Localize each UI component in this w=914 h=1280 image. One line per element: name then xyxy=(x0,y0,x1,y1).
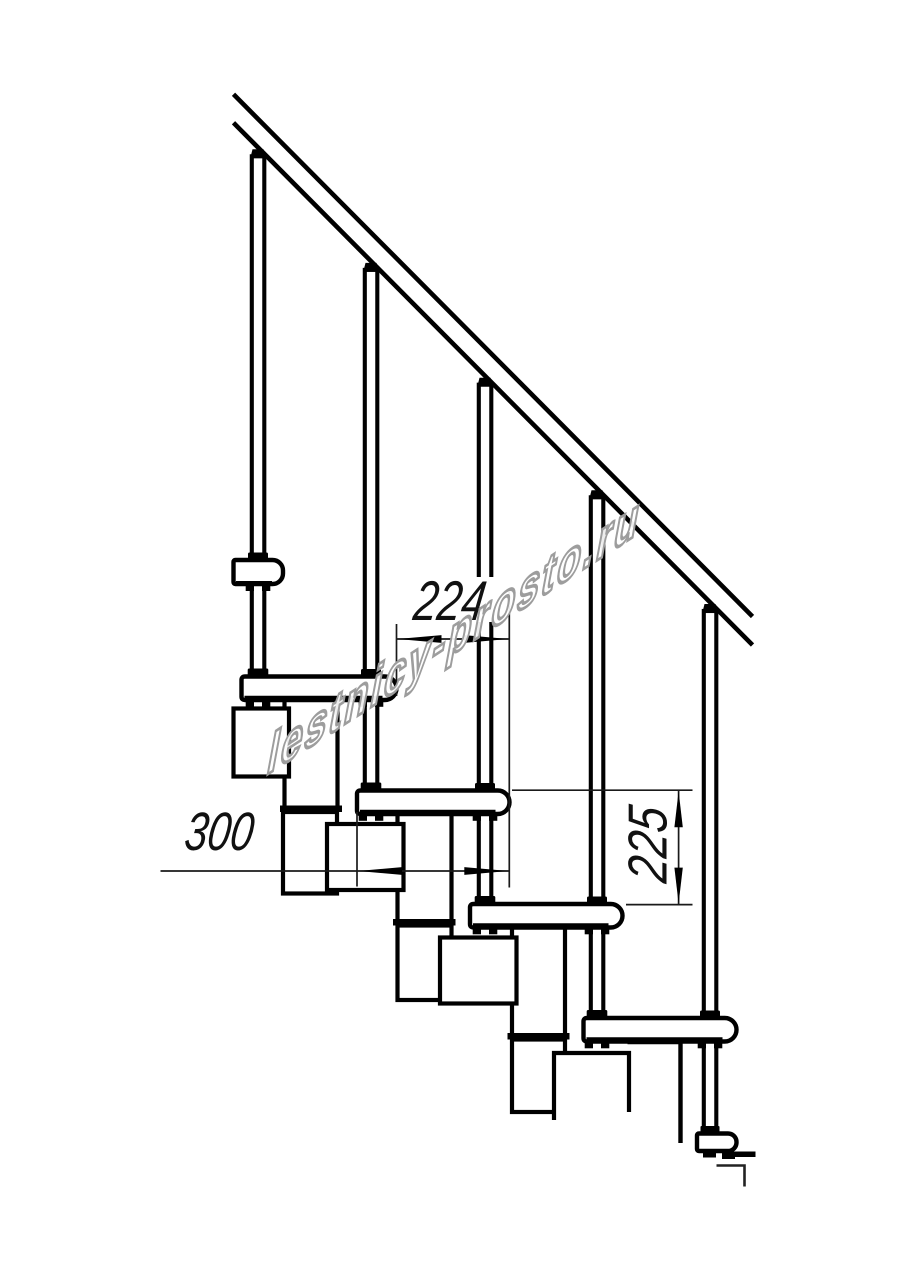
svg-text:lestnicy-prosto.ru: lestnicy-prosto.ru xyxy=(263,482,646,789)
svg-text:225: 225 xyxy=(617,802,679,887)
svg-text:300: 300 xyxy=(181,802,257,862)
